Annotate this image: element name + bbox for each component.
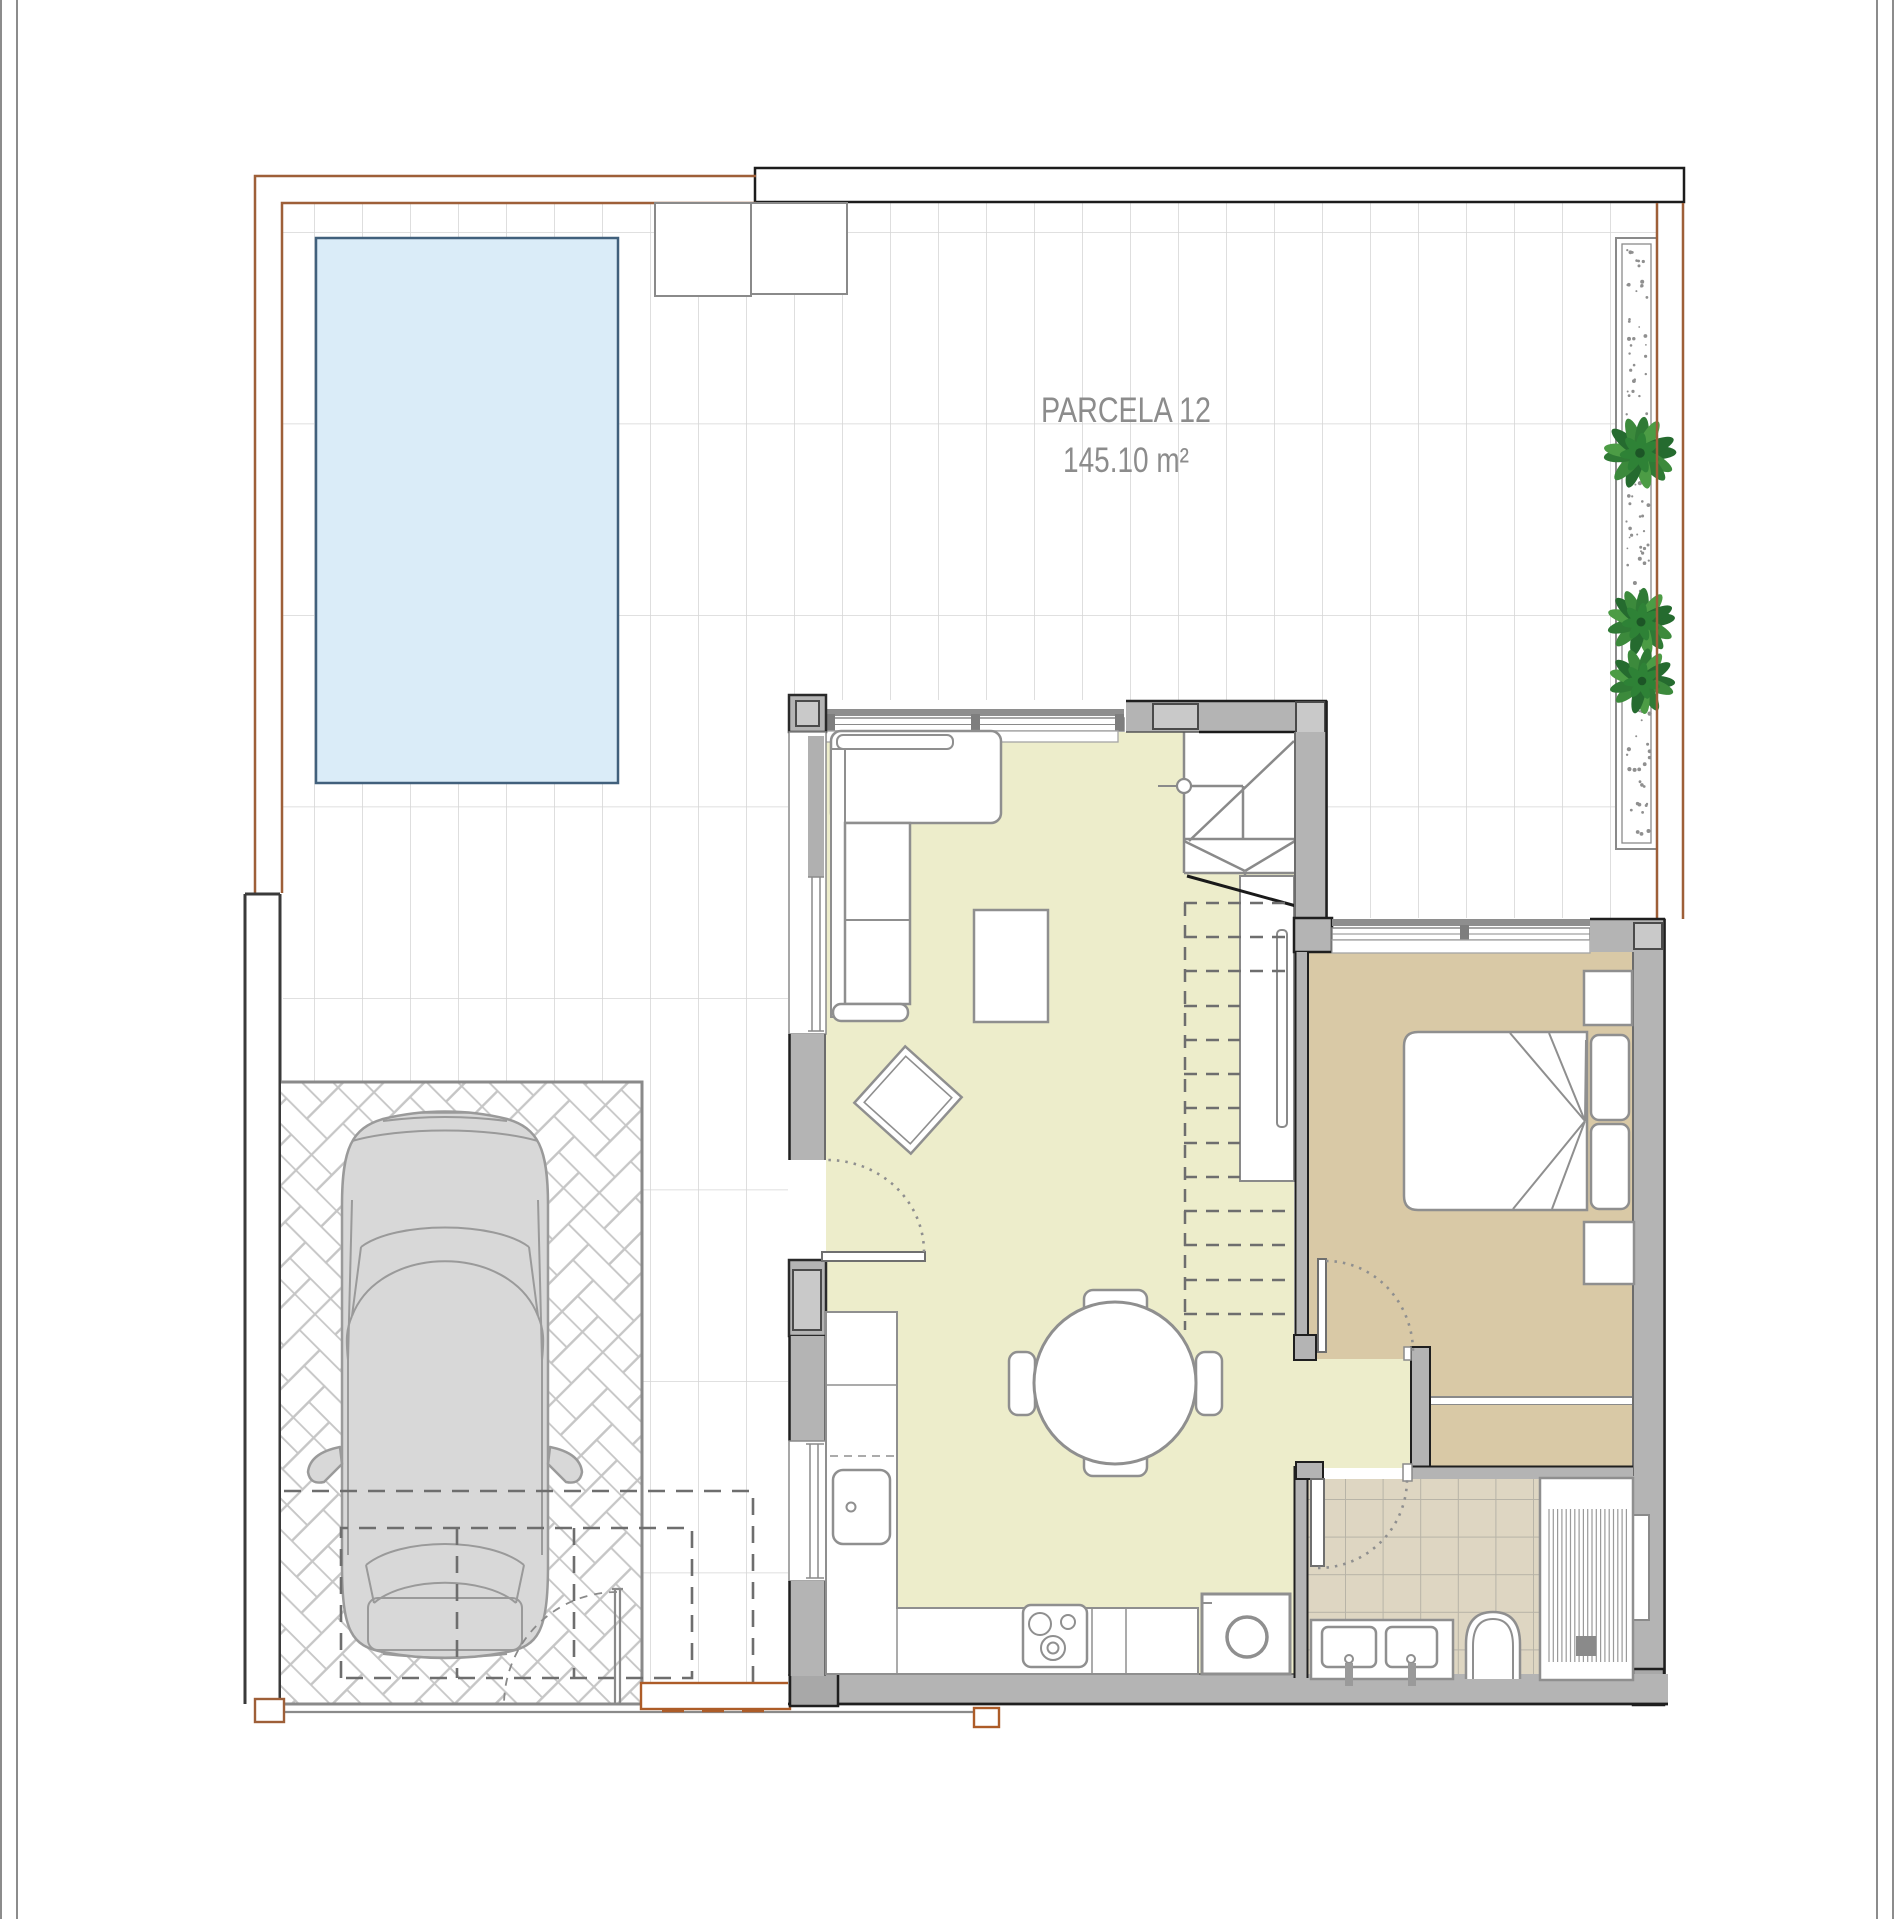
svg-text:145.10 m²: 145.10 m² [1063, 441, 1189, 480]
svg-text:PARCELA 12: PARCELA 12 [1041, 391, 1211, 430]
